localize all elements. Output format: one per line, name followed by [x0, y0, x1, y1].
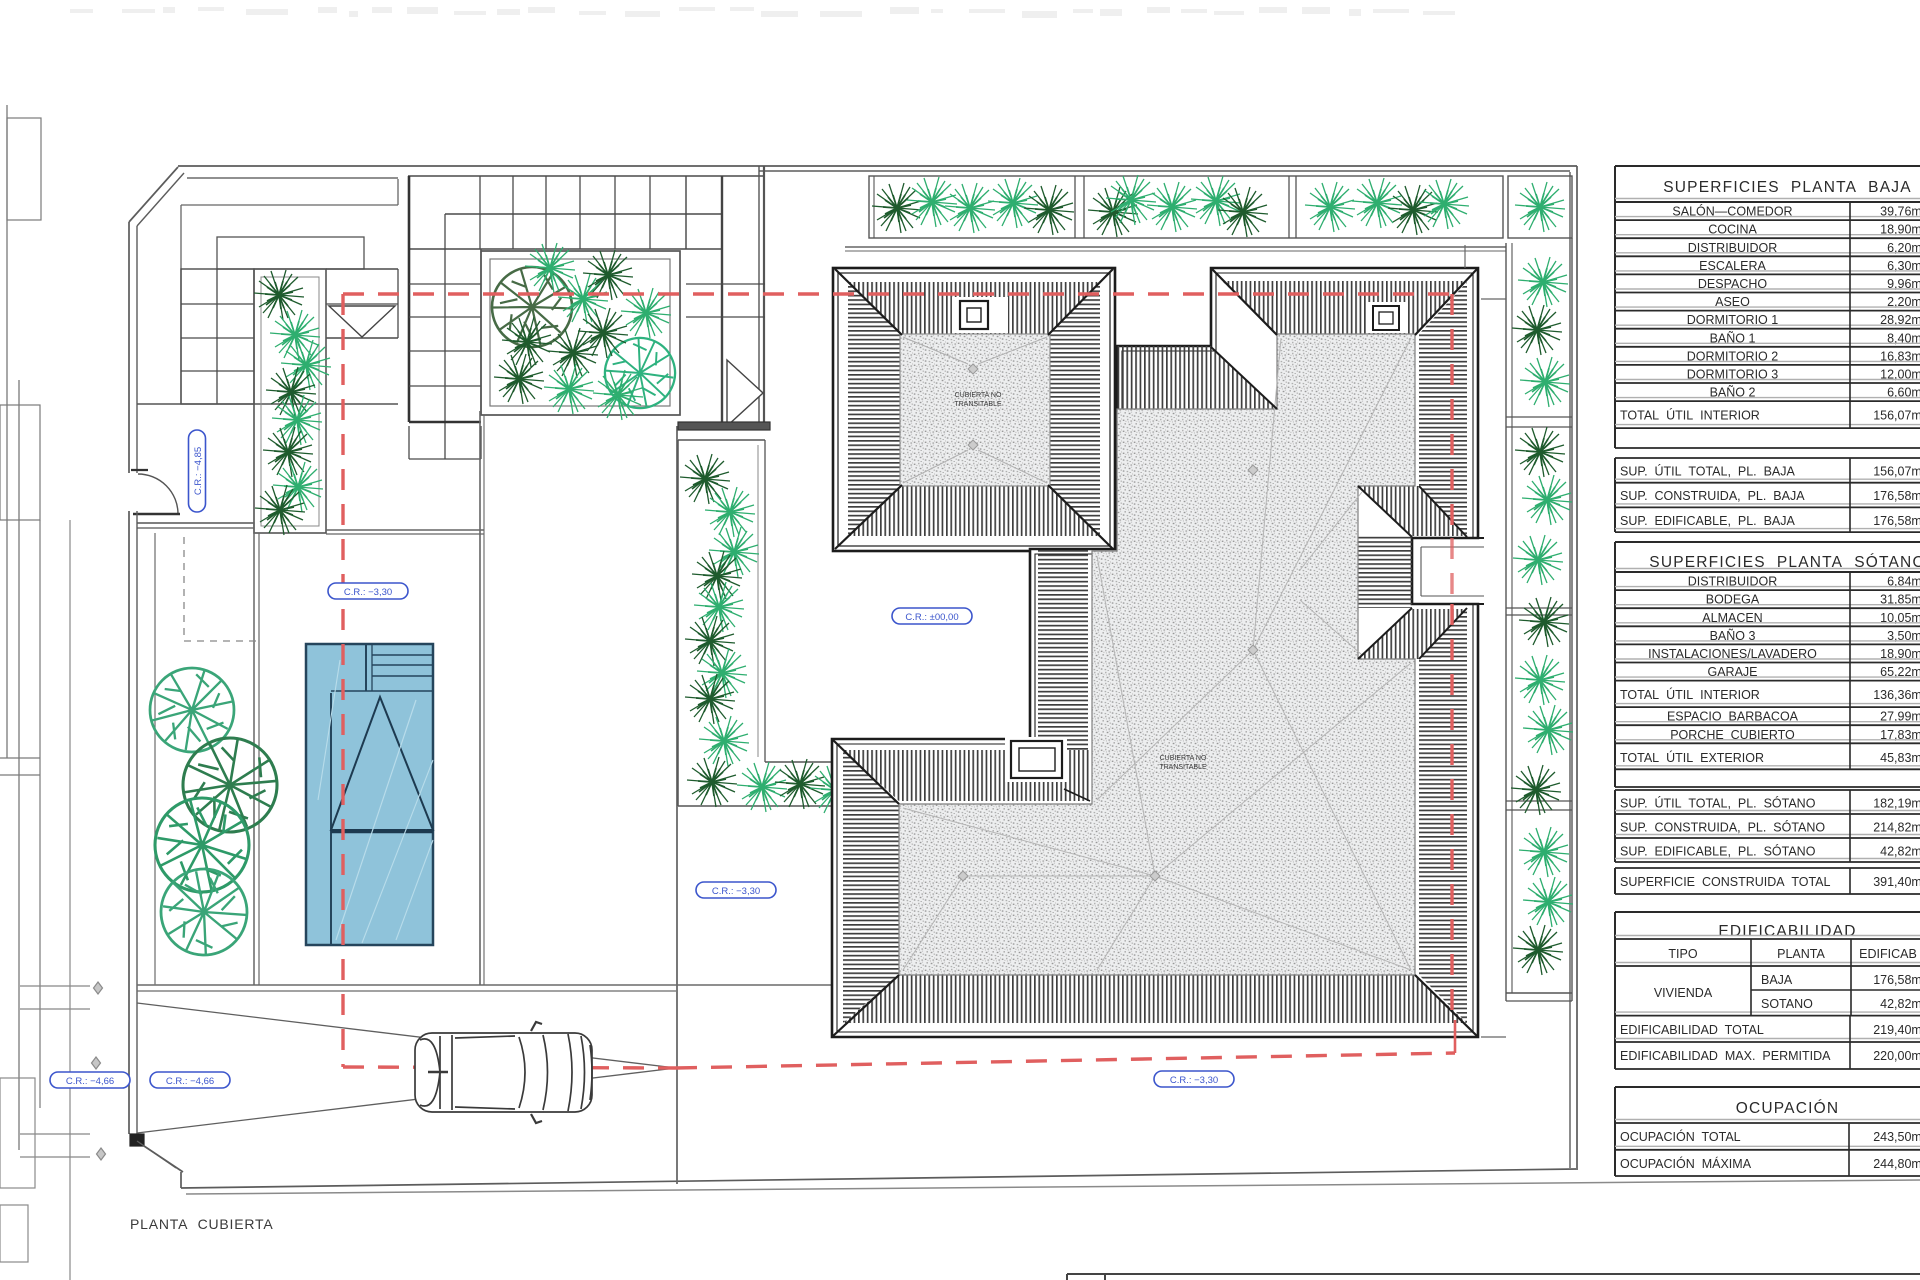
svg-text:244,80m²: 244,80m²	[1873, 1157, 1920, 1171]
svg-text:214,82m²: 214,82m²	[1873, 821, 1920, 835]
svg-text:OCUPACIÓN: OCUPACIÓN	[1736, 1100, 1840, 1117]
svg-text:156,07m²: 156,07m²	[1873, 465, 1920, 479]
svg-text:PLANTA CUBIERTA: PLANTA CUBIERTA	[130, 1216, 274, 1232]
svg-text:SOTANO: SOTANO	[1761, 997, 1813, 1011]
svg-text:BAJA: BAJA	[1761, 973, 1793, 987]
svg-text:SUP. CONSTRUIDA, PL. BAJA: SUP. CONSTRUIDA, PL. BAJA	[1620, 489, 1805, 503]
svg-text:TRANSITABLE: TRANSITABLE	[954, 401, 1002, 408]
svg-text:C.R.: ±00,00: C.R.: ±00,00	[905, 612, 958, 623]
svg-text:CUBIERTA NO: CUBIERTA NO	[1160, 755, 1207, 762]
svg-text:219,40m²: 219,40m²	[1873, 1023, 1920, 1037]
svg-text:SUP. ÚTIL TOTAL, PL. SÓTAN: SUP. ÚTIL TOTAL, PL. SÓTANO	[1620, 796, 1816, 811]
svg-text:182,19m²: 182,19m²	[1873, 797, 1920, 811]
svg-text:SUP. ÚTIL TOTAL, PL. BAJA: SUP. ÚTIL TOTAL, PL. BAJA	[1620, 464, 1795, 479]
svg-text:C.R.: −4,85: C.R.: −4,85	[193, 447, 204, 495]
svg-text:C.R.: −4,66: C.R.: −4,66	[66, 1076, 114, 1087]
svg-text:C.R.: −4,66: C.R.: −4,66	[166, 1076, 214, 1087]
svg-text:EDIFICAB: EDIFICAB	[1859, 947, 1917, 961]
svg-text:SUP. EDIFICABLE, PL. BAJA: SUP. EDIFICABLE, PL. BAJA	[1620, 514, 1795, 528]
svg-text:176,58m²: 176,58m²	[1873, 973, 1920, 987]
svg-text:391,40m²: 391,40m²	[1873, 875, 1920, 889]
svg-text:TOTAL ÚTIL INTERIOR: TOTAL ÚTIL INTERIOR	[1620, 687, 1760, 702]
svg-text:220,00m²: 220,00m²	[1873, 1049, 1920, 1063]
svg-text:EDIFICABILIDAD MAX. PERMITID: EDIFICABILIDAD MAX. PERMITIDA	[1620, 1049, 1831, 1063]
svg-text:TRANSITABLE: TRANSITABLE	[1159, 764, 1207, 771]
svg-text:136,36m²: 136,36m²	[1873, 688, 1920, 702]
svg-text:176,58m²: 176,58m²	[1873, 514, 1920, 528]
svg-text:CUBIERTA NO: CUBIERTA NO	[955, 392, 1002, 399]
svg-text:SUP. EDIFICABLE, PL. SÓTANO: SUP. EDIFICABLE, PL. SÓTANO	[1620, 844, 1816, 859]
svg-text:EDIFICABILIDAD: EDIFICABILIDAD	[1718, 923, 1856, 940]
svg-text:TOTAL ÚTIL INTERIOR: TOTAL ÚTIL INTERIOR	[1620, 408, 1760, 423]
svg-text:OCUPACIÓN MÁXIMA: OCUPACIÓN MÁXIMA	[1620, 1156, 1752, 1171]
svg-text:PLANTA: PLANTA	[1777, 947, 1825, 961]
svg-text:176,58m²: 176,58m²	[1873, 489, 1920, 503]
svg-text:C.R.: −3,30: C.R.: −3,30	[344, 587, 392, 598]
svg-text:SUP. CONSTRUIDA, PL. SÓTANO: SUP. CONSTRUIDA, PL. SÓTANO	[1620, 820, 1825, 835]
svg-text:45,83m²: 45,83m²	[1880, 751, 1920, 765]
svg-text:OCUPACIÓN TOTAL: OCUPACIÓN TOTAL	[1620, 1129, 1741, 1144]
svg-text:243,50m²: 243,50m²	[1873, 1130, 1920, 1144]
svg-text:TOTAL ÚTIL EXTERIOR: TOTAL ÚTIL EXTERIOR	[1620, 750, 1764, 765]
svg-text:VIVIENDA: VIVIENDA	[1654, 986, 1713, 1000]
svg-text:42,82m²: 42,82m²	[1880, 997, 1920, 1011]
svg-text:C.R.: −3,30: C.R.: −3,30	[1170, 1075, 1218, 1086]
svg-text:EDIFICABILIDAD TOTAL: EDIFICABILIDAD TOTAL	[1620, 1023, 1764, 1037]
svg-text:TIPO: TIPO	[1668, 947, 1697, 961]
svg-text:SUPERFICIE CONSTRUIDA TOTAL: SUPERFICIE CONSTRUIDA TOTAL	[1620, 875, 1830, 889]
svg-text:SUPERFICIES PLANTA BAJA: SUPERFICIES PLANTA BAJA	[1663, 179, 1912, 196]
svg-text:C.R.: −3,30: C.R.: −3,30	[712, 886, 760, 897]
svg-text:156,07m²: 156,07m²	[1873, 409, 1920, 423]
svg-text:42,82m²: 42,82m²	[1880, 845, 1920, 859]
